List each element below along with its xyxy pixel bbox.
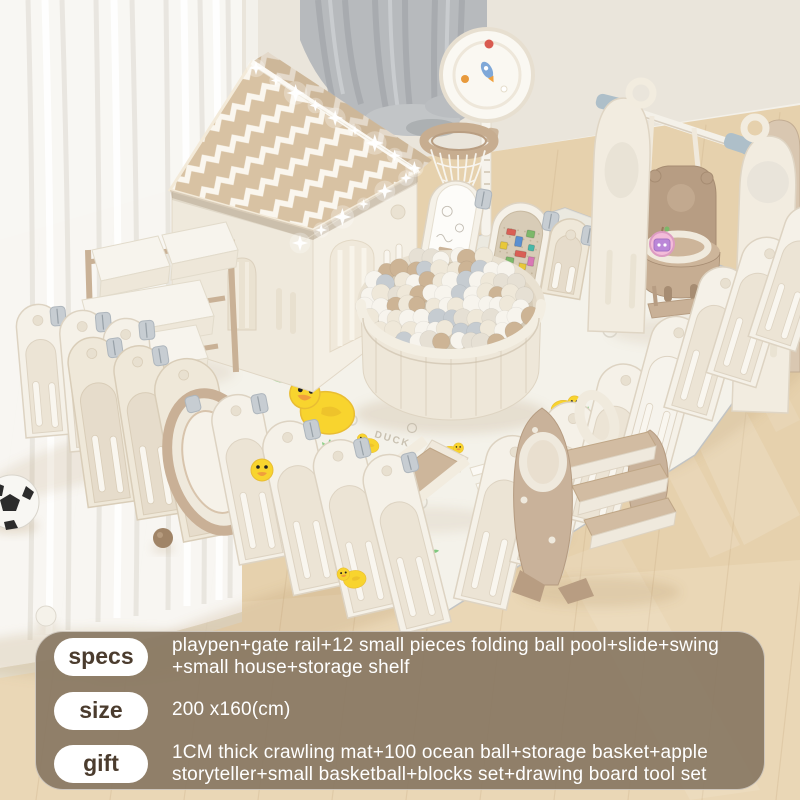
gift-row: gift 1CM thick crawling mat+100 ocean ba…	[54, 742, 744, 786]
product-info-panel: specs playpen+gate rail+12 small pieces …	[35, 631, 765, 790]
specs-row: specs playpen+gate rail+12 small pieces …	[54, 635, 744, 679]
specs-badge: specs	[54, 638, 148, 676]
house-peep-hole	[391, 205, 405, 219]
gift-text: 1CM thick crawling mat+100 ocean ball+st…	[172, 742, 744, 786]
ball-pool	[355, 247, 541, 420]
ladder-grip-hole	[523, 436, 563, 488]
size-badge: size	[54, 692, 148, 730]
gift-badge: gift	[54, 745, 148, 783]
backboard-sticker-ball	[461, 75, 469, 83]
backboard-sticker-red	[485, 40, 494, 49]
wooden-ball	[153, 528, 173, 548]
swing-left-panel	[588, 97, 652, 333]
duck-sticker	[251, 459, 273, 481]
specs-text: playpen+gate rail+12 small pieces foldin…	[172, 635, 744, 679]
white-ball	[36, 606, 56, 626]
product-photo: DUCK DUCK	[0, 0, 800, 800]
backboard-sticker-star	[501, 86, 507, 92]
size-row: size 200 x160(cm)	[54, 692, 744, 730]
size-text: 200 x160(cm)	[172, 699, 291, 721]
